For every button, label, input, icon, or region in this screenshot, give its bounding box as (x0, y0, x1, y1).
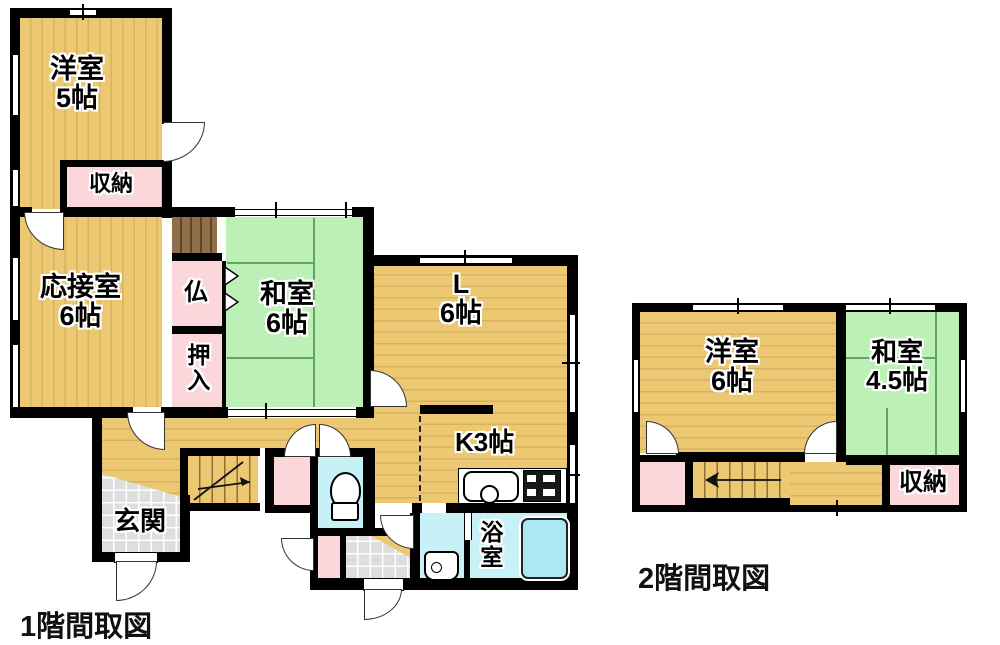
wall-segment (60, 160, 67, 207)
wall-segment (172, 253, 222, 261)
window-tick (737, 298, 739, 314)
wall-segment (356, 407, 374, 418)
door-arc (281, 538, 314, 571)
room-name: 洋室 (705, 338, 759, 367)
wall-segment (10, 407, 133, 418)
back-door-arc (364, 589, 402, 620)
room-name: 和室 (866, 338, 928, 366)
window (960, 360, 966, 412)
room-label-youshitsu5: 洋室 5帖 (50, 55, 104, 113)
stairs-floor2 (693, 462, 790, 498)
tatami-line (935, 312, 937, 456)
window (420, 257, 512, 264)
room-label2-washitsu45: 和室 4.5帖 (866, 338, 928, 394)
room-name: 和室 (260, 280, 314, 309)
tatami-line (886, 408, 888, 456)
floor1-caption: 1階間取図 (20, 603, 152, 645)
hall2-floor (790, 462, 882, 505)
wall-segment (340, 532, 346, 578)
room-label-washitsu6: 和室 6帖 (260, 280, 314, 338)
wall-segment (882, 463, 890, 512)
stairs-down-arrow (693, 462, 790, 498)
room-name: L (440, 270, 482, 299)
wall-segment (60, 160, 162, 167)
room-size: 6帖 (260, 309, 314, 338)
window (12, 170, 19, 206)
window (633, 360, 639, 412)
room-name: 応接室 (40, 273, 121, 302)
wall-segment (567, 255, 578, 590)
room-label-kitchen: K3帖 (455, 428, 514, 456)
wall-segment (632, 505, 967, 512)
hall-closet-floor (274, 457, 310, 505)
wall-segment (836, 303, 846, 462)
window (235, 209, 352, 216)
wall-segment (640, 455, 686, 462)
room-label2-shuunou: 収納 (899, 470, 947, 496)
wall-segment (265, 448, 274, 513)
entrance-door-arc (116, 561, 157, 601)
door-gap (162, 124, 172, 160)
wall-segment (60, 207, 235, 217)
wall-segment (363, 448, 375, 535)
wall-segment (92, 418, 102, 562)
room-label-living: L 6帖 (440, 270, 482, 328)
room-size: 6帖 (440, 299, 482, 328)
wall-segment (162, 8, 172, 218)
room-label-oshiire: 押入 (184, 343, 209, 393)
wall-segment (161, 407, 228, 418)
room-label2-youshitsu6: 洋室 6帖 (705, 338, 759, 396)
wall-segment (172, 326, 222, 334)
butsuma-chevron-icon (224, 292, 240, 312)
toilet-tank (331, 502, 359, 521)
tatami-line (227, 357, 314, 359)
window-tick (464, 250, 466, 266)
window-tick (275, 202, 277, 218)
bathtub-icon (521, 518, 568, 579)
floorplan-canvas: 洋室 5帖 収納 応接室 6帖 仏 押入 和室 6帖 L 6帖 K3帖 玄関 浴… (0, 0, 1000, 645)
sliding-door (228, 409, 356, 417)
butsuma-chevron-icon (224, 266, 240, 286)
wall-segment (180, 503, 260, 511)
room-size: 4.5帖 (866, 366, 928, 394)
kitchen-stove-icon (523, 470, 561, 502)
window (12, 258, 19, 320)
wall-segment (180, 448, 188, 508)
bath-door-line (464, 513, 472, 540)
tatami-line (227, 262, 314, 264)
side-closet-floor (318, 535, 340, 578)
room-label-genkan: 玄関 (114, 507, 166, 535)
floor2-caption: 2階間取図 (638, 555, 770, 597)
room-size: 5帖 (50, 84, 104, 113)
washbasin-faucet (431, 562, 442, 573)
room-label-butsuma: 仏 (184, 280, 208, 306)
window-tick (562, 362, 580, 364)
window (12, 345, 19, 408)
wall-segment (676, 452, 805, 462)
window-tick (265, 403, 267, 419)
room-size: 6帖 (705, 367, 759, 396)
sliding-partition (419, 416, 421, 501)
window-tick (82, 4, 84, 20)
stairs-floor1 (188, 456, 258, 505)
room-label-bathroom: 浴室 (477, 520, 502, 570)
room-label-shuunou1: 収納 (89, 172, 133, 196)
wall-segment (846, 455, 959, 465)
wall-segment (685, 498, 790, 506)
room-name: 洋室 (50, 55, 104, 84)
wall-segment (420, 405, 493, 414)
window-tick (345, 202, 347, 218)
hallway-floor (368, 418, 420, 503)
room-label-ousetsushitsu: 応接室 6帖 (40, 273, 121, 331)
wall-segment (180, 448, 260, 456)
door-gap (422, 503, 446, 513)
wall-segment (310, 448, 318, 535)
window-tick (889, 298, 891, 314)
room-size: 6帖 (40, 302, 121, 331)
kitchen-sink-drain (480, 485, 499, 504)
room2-pink-floor (640, 462, 686, 505)
stairs-up-arrow (188, 456, 258, 505)
window (12, 55, 19, 115)
window-tick (836, 500, 838, 516)
